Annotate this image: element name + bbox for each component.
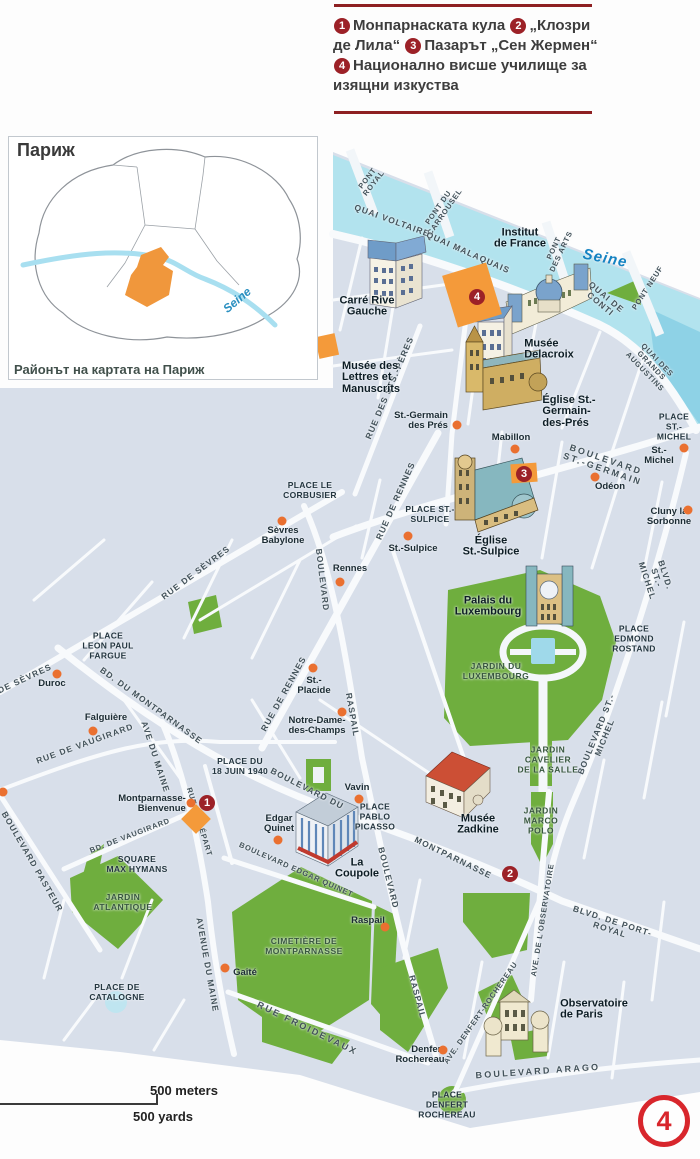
building-hotel-quai-voltaire bbox=[368, 236, 426, 308]
guidebook-map-page: 1Монпарнаската кула 2„Клозри де Лила“ 3П… bbox=[0, 0, 700, 1159]
scale-yards-label: 500 yards bbox=[133, 1109, 193, 1124]
vavin-green-court bbox=[313, 767, 324, 783]
luxembourg-pond bbox=[531, 638, 555, 664]
scale-meters-label: 500 meters bbox=[150, 1083, 218, 1098]
inset-map-art bbox=[9, 137, 317, 379]
building-palais-du-luxembourg bbox=[526, 566, 573, 626]
inset-title: Париж bbox=[17, 140, 75, 161]
place-catalogne-circle bbox=[105, 991, 127, 1013]
scale-bar: 500 meters 500 yards bbox=[0, 1080, 260, 1140]
page-number-badge: 4 bbox=[638, 1095, 690, 1147]
sevres-green bbox=[188, 595, 222, 634]
page-number: 4 bbox=[656, 1106, 671, 1136]
inset-caption: Районът на картата на Париж bbox=[14, 362, 204, 377]
inset-map: Париж Seine Районът на картата на Париж bbox=[8, 136, 318, 380]
scale-bar-line bbox=[0, 1103, 157, 1105]
